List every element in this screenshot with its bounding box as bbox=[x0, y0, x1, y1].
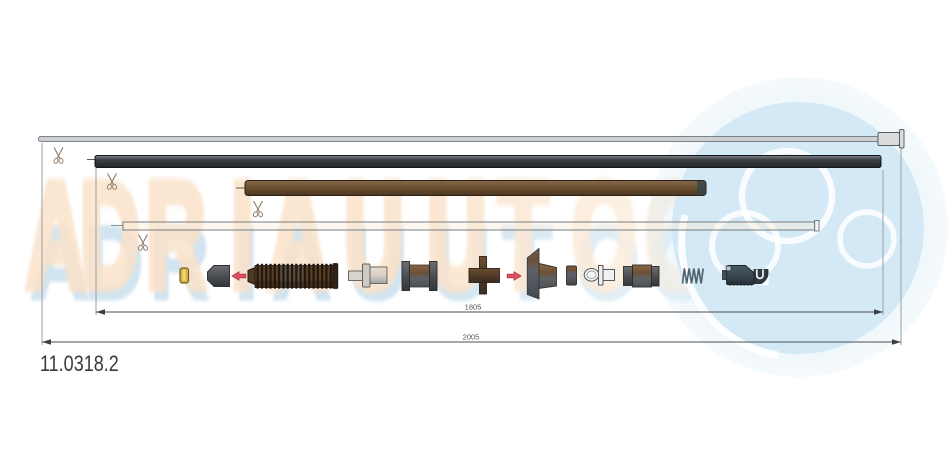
svg-text:1805: 1805 bbox=[465, 303, 482, 312]
svg-text:2005: 2005 bbox=[463, 333, 480, 342]
